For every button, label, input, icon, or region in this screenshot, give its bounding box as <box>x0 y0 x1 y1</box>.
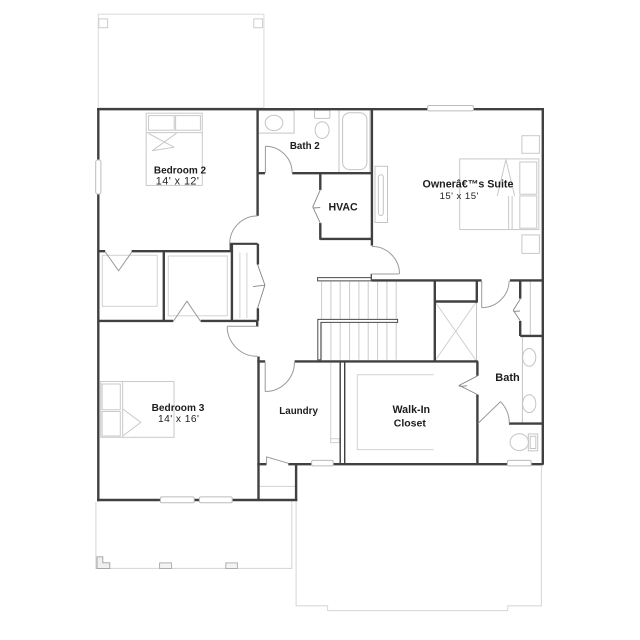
svg-text:14' x 12': 14' x 12' <box>156 175 200 187</box>
svg-text:Laundry: Laundry <box>279 406 318 417</box>
svg-text:15' x 15': 15' x 15' <box>440 191 479 202</box>
svg-text:Bath 2: Bath 2 <box>290 141 320 152</box>
svg-text:Ownerâ€™s Suite: Ownerâ€™s Suite <box>423 178 514 190</box>
svg-text:14' x 16': 14' x 16' <box>158 414 199 425</box>
svg-text:Bedroom 3: Bedroom 3 <box>152 403 205 414</box>
svg-text:Bath: Bath <box>495 372 520 384</box>
svg-text:Closet: Closet <box>394 417 427 429</box>
svg-text:Walk-In: Walk-In <box>392 404 430 416</box>
svg-text:HVAC: HVAC <box>328 201 358 213</box>
